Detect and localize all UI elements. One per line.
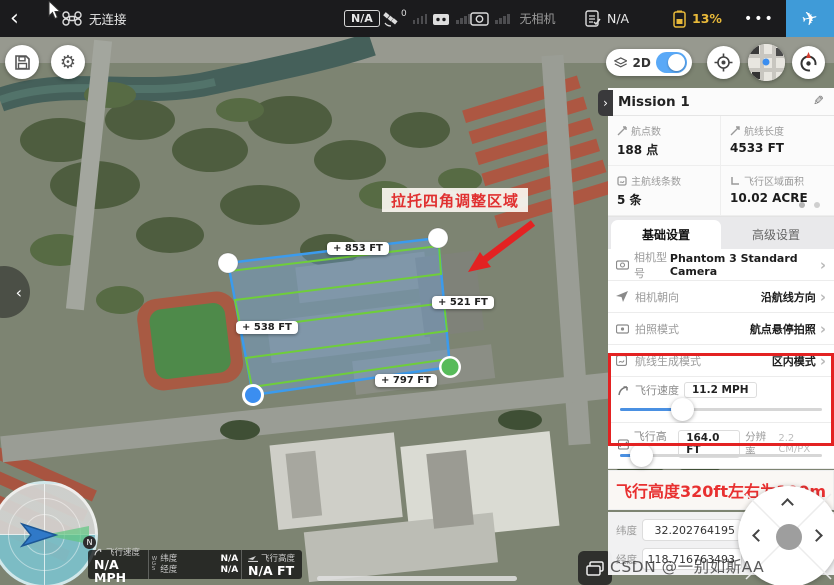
more-button[interactable]: ••• — [744, 0, 775, 37]
setting-route-mode[interactable]: 航线生成模式 区内模式› — [608, 345, 834, 377]
telemetry-altitude: 飞行高度 N/A FT — [241, 550, 302, 579]
plus-icon: + — [242, 322, 250, 333]
altitude-icon — [618, 439, 629, 450]
setting-photo-mode[interactable]: 拍照模式 航点悬停拍照› — [608, 313, 834, 345]
compass-reset-button[interactable] — [792, 46, 825, 79]
corner-handle-tr — [428, 228, 448, 248]
rc-signal-bars — [456, 14, 471, 24]
gear-icon: ⚙ — [60, 52, 76, 73]
battery-status[interactable]: 13% — [672, 0, 722, 37]
map-thumbnail — [748, 44, 785, 81]
route-length-icon — [730, 126, 740, 136]
checklist-icon — [584, 10, 601, 27]
watermark: CSDN @一别如斯AA — [610, 555, 764, 577]
tab-basic-settings[interactable]: 基础设置 — [611, 220, 721, 249]
telemetry-bar: 飞行速度 N/A MPH W G S 纬度N/A 经度N/A 飞行高度 N/A … — [88, 550, 302, 579]
back-button[interactable]: ‹ — [10, 0, 19, 37]
layers-icon — [614, 56, 627, 70]
route-mode-icon — [616, 355, 627, 366]
setting-camera-heading[interactable]: 相机朝向 沿航线方向› — [608, 281, 834, 313]
save-mission-button[interactable] — [5, 45, 39, 79]
takeoff-button[interactable]: ✈ — [786, 0, 834, 37]
speed-slider-thumb[interactable] — [671, 398, 694, 421]
chevron-right-icon: › — [820, 352, 826, 370]
map-mode-label: 2D — [632, 56, 650, 70]
connection-status: 无连接 — [89, 9, 127, 28]
annotation-label: 拉托四角调整区域 — [382, 188, 528, 212]
checklist-value: N/A — [607, 11, 629, 26]
map-2d-toggle[interactable]: 2D — [606, 49, 692, 76]
plus-icon: + — [438, 297, 446, 308]
chevron-left-icon: ‹ — [16, 283, 22, 302]
telemetry-coords: W G S 纬度N/A 经度N/A — [148, 550, 241, 579]
gps-signal-bars — [413, 14, 428, 24]
aircraft-heading-arrow — [22, 524, 56, 546]
attitude-indicator — [0, 481, 98, 585]
home-indicator[interactable] — [317, 576, 517, 581]
gps-status[interactable]: 0 — [382, 0, 427, 37]
map-layer-button[interactable] — [748, 44, 785, 81]
speed-value[interactable]: 11.2 MPH — [684, 382, 757, 398]
satellite-icon — [382, 11, 399, 27]
camera-status-label: 无相机 — [520, 10, 556, 27]
altitude-slider-thumb[interactable] — [630, 444, 653, 467]
speed-icon — [94, 548, 103, 556]
altitude-slider[interactable] — [620, 454, 822, 457]
aircraft-status[interactable]: 无连接 — [62, 0, 127, 37]
latitude-field[interactable]: 32.202764195 — [642, 519, 742, 541]
mode-toggle-switch[interactable] — [656, 52, 687, 73]
mission-header: Mission 1 ✎ — [608, 88, 834, 116]
settings-tabs: 基础设置 高级设置 — [608, 217, 834, 249]
area-icon — [730, 176, 740, 186]
chevron-right-icon: › — [603, 96, 608, 110]
locate-button[interactable] — [707, 46, 740, 79]
camera-model-icon — [616, 260, 629, 270]
stat-waypoints: 航点数 188 点 — [608, 116, 721, 166]
stat-mainlines: 主航线条数 5 条 — [608, 166, 721, 216]
camera-signal-bars — [495, 14, 510, 24]
flight-altitude-row: 飞行高度 164.0 FT 分辨率 2.2 CM/PX — [608, 423, 834, 469]
mode-indicator[interactable]: N/A — [344, 0, 380, 37]
panel-collapse-tab[interactable]: › — [598, 90, 613, 116]
checklist-status[interactable]: N/A — [584, 0, 629, 37]
edge-length-pill[interactable]: + 853 FT — [327, 242, 389, 255]
edge-length-pill[interactable]: + 521 FT — [432, 296, 494, 309]
mainlines-icon — [617, 176, 627, 186]
chevron-right-icon: › — [820, 256, 826, 274]
edge-length-pill[interactable]: + 538 FT — [236, 321, 298, 334]
takeoff-plane-icon: ✈ — [800, 6, 820, 31]
tab-advanced-settings[interactable]: 高级设置 — [721, 220, 831, 249]
waypoint-icon — [617, 126, 627, 136]
rc-status[interactable] — [432, 0, 471, 37]
mission-stats: 航点数 188 点 航线长度 4533 FT 主航线条数 5 条 飞行区域面积 … — [608, 116, 834, 217]
chevron-right-icon: › — [820, 320, 826, 338]
app-window: + 853 FT + 521 FT + 538 FT + 797 FT 拉托四角… — [0, 0, 834, 585]
photo-mode-icon — [616, 324, 629, 334]
chevron-right-icon: › — [820, 288, 826, 306]
flight-speed-row: 飞行速度 11.2 MPH — [608, 377, 834, 423]
north-badge: N — [83, 536, 96, 549]
plus-icon: + — [381, 375, 389, 386]
speed-slider[interactable] — [620, 408, 822, 411]
stats-page-dots[interactable] — [799, 202, 820, 208]
mission-settings-button[interactable]: ⚙ — [51, 45, 85, 79]
compass-icon — [798, 52, 819, 73]
setting-camera-model[interactable]: 相机型号 Phantom 3 Standard Camera› — [608, 249, 834, 281]
edge-length-pill[interactable]: + 797 FT — [375, 374, 437, 387]
top-toolbar: ‹ 无连接 N/A 0 无相机 N/A 13% ••• ✈ — [0, 0, 834, 37]
plus-icon: + — [333, 243, 341, 254]
save-icon — [14, 54, 31, 71]
satellite-count: 0 — [401, 9, 407, 19]
locate-icon — [714, 53, 733, 72]
camera-status[interactable]: 无相机 — [470, 0, 556, 37]
speed-icon — [618, 385, 630, 396]
corner-handle-tl — [218, 253, 238, 273]
altitude-icon — [248, 554, 258, 562]
battery-percent: 13% — [692, 11, 722, 26]
stat-route-length: 航线长度 4533 FT — [721, 116, 834, 166]
edit-mission-icon[interactable]: ✎ — [813, 94, 824, 109]
remote-controller-icon — [432, 11, 450, 26]
stat-area: 飞行区域面积 10.02 ACRE — [721, 166, 834, 216]
mouse-cursor — [48, 1, 61, 20]
battery-icon — [672, 10, 687, 28]
nudge-center-button[interactable] — [776, 524, 802, 550]
screenshot-layers-button[interactable] — [578, 551, 612, 585]
layers-stack-icon — [586, 561, 604, 576]
mission-title: Mission 1 — [618, 94, 690, 110]
camera-icon — [470, 11, 489, 26]
resolution-value: 2.2 CM/PX — [778, 433, 824, 455]
telemetry-speed: 飞行速度 N/A MPH — [88, 550, 148, 579]
heading-icon — [616, 291, 628, 302]
drone-icon — [62, 11, 82, 26]
